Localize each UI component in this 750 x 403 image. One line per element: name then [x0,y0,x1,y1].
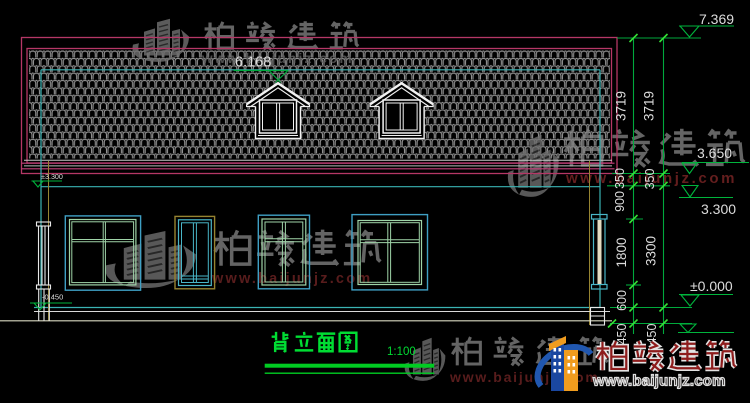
svg-text:3300: 3300 [644,236,659,266]
svg-text:www.baijunjz.com: www.baijunjz.com [592,373,726,390]
svg-text:3.650: 3.650 [697,145,732,161]
svg-text:7.369: 7.369 [699,11,734,27]
svg-text:±0.000: ±0.000 [690,278,733,294]
svg-text:-0.450: -0.450 [42,293,63,302]
svg-text:1800: 1800 [614,237,629,267]
svg-text:3719: 3719 [614,91,629,121]
svg-text:6.168: 6.168 [235,55,271,71]
svg-text:3719: 3719 [642,91,657,121]
svg-text:350: 350 [643,169,657,190]
svg-text:3.300: 3.300 [701,201,736,217]
svg-text:www.baijunjz.com: www.baijunjz.com [201,51,354,66]
svg-text:350: 350 [613,168,627,189]
svg-text:600: 600 [615,290,629,311]
svg-text:±3.300: ±3.300 [41,172,63,181]
svg-text:450: 450 [615,324,629,345]
svg-text:1:100: 1:100 [387,346,416,358]
svg-text:900: 900 [613,191,627,212]
